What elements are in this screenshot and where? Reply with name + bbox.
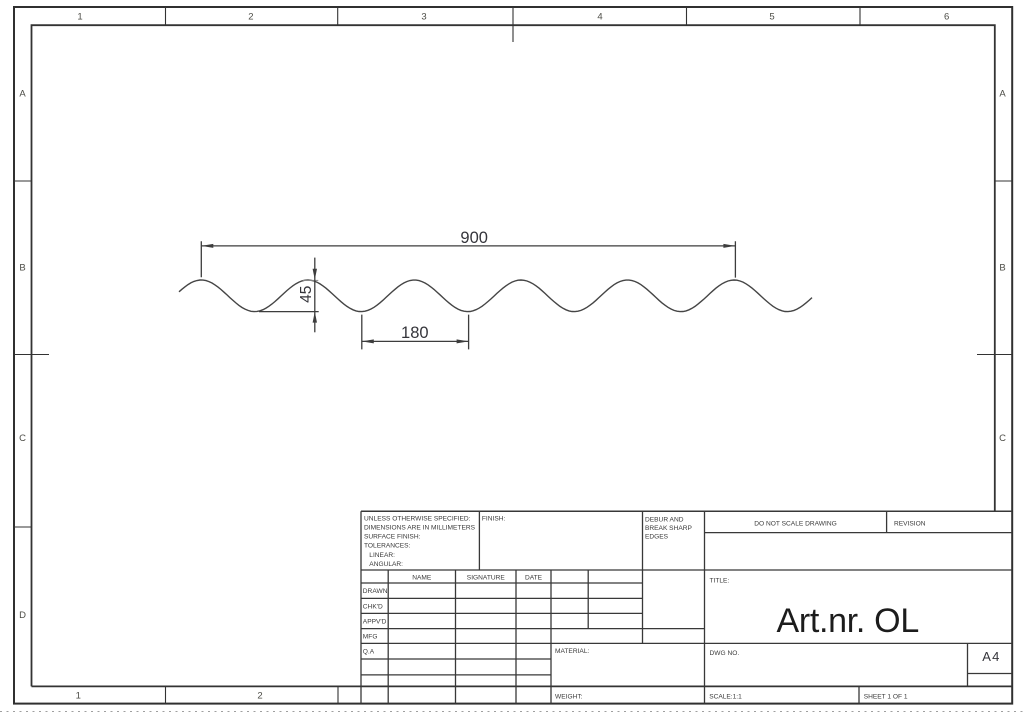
svg-text:45: 45 (298, 286, 315, 303)
svg-text:1: 1 (76, 690, 81, 701)
svg-text:WEIGHT:: WEIGHT: (555, 693, 583, 700)
svg-text:SCALE:1:1: SCALE:1:1 (709, 694, 742, 701)
svg-text:B: B (19, 262, 25, 273)
svg-text:ANGULAR:: ANGULAR: (369, 561, 403, 568)
svg-text:TOLERANCES:: TOLERANCES: (364, 543, 411, 550)
svg-text:2: 2 (248, 12, 253, 23)
svg-text:C: C (19, 433, 26, 444)
svg-text:2: 2 (257, 690, 262, 701)
svg-text:MFG: MFG (363, 634, 378, 641)
svg-text:D: D (19, 610, 26, 621)
svg-text:CHK'D: CHK'D (363, 603, 383, 610)
svg-text:SIGNATURE: SIGNATURE (467, 575, 506, 582)
svg-text:BREAK SHARP: BREAK SHARP (645, 525, 693, 532)
svg-text:DO NOT SCALE DRAWING: DO NOT SCALE DRAWING (754, 520, 836, 527)
svg-text:3: 3 (421, 12, 426, 23)
svg-text:TITLE:: TITLE: (710, 577, 730, 584)
svg-text:1: 1 (77, 12, 82, 23)
svg-text:SURFACE FINISH:: SURFACE FINISH: (364, 534, 421, 541)
svg-text:EDGES: EDGES (645, 534, 669, 541)
svg-text:LINEAR:: LINEAR: (369, 552, 395, 559)
svg-text:DATE: DATE (525, 575, 543, 582)
svg-text:DEBUR AND: DEBUR AND (645, 517, 684, 524)
svg-text:NAME: NAME (412, 575, 432, 582)
svg-text:UNLESS OTHERWISE SPECIFIED:: UNLESS OTHERWISE SPECIFIED: (364, 515, 471, 522)
svg-text:900: 900 (460, 229, 488, 247)
svg-text:SHEET 1 OF 1: SHEET 1 OF 1 (864, 694, 908, 701)
svg-text:180: 180 (401, 324, 429, 342)
svg-text:A: A (999, 88, 1006, 99)
svg-text:A4: A4 (982, 649, 1000, 664)
svg-text:DWG NO.: DWG NO. (710, 650, 740, 657)
svg-text:APPV'D: APPV'D (363, 619, 387, 626)
svg-text:Q.A: Q.A (363, 649, 375, 656)
svg-text:DIMENSIONS ARE IN MILLIMETERS: DIMENSIONS ARE IN MILLIMETERS (364, 524, 476, 531)
svg-text:Art.nr. OL: Art.nr. OL (776, 602, 919, 640)
svg-text:REVISION: REVISION (894, 520, 926, 527)
svg-text:6: 6 (944, 12, 949, 23)
svg-text:5: 5 (769, 12, 774, 23)
svg-text:MATERIAL:: MATERIAL: (555, 648, 589, 655)
svg-text:4: 4 (597, 12, 602, 23)
svg-text:FINISH:: FINISH: (482, 515, 506, 522)
svg-text:B: B (999, 262, 1005, 273)
svg-text:A: A (19, 88, 26, 99)
svg-text:DRAWN: DRAWN (363, 588, 388, 595)
svg-text:C: C (999, 433, 1006, 444)
